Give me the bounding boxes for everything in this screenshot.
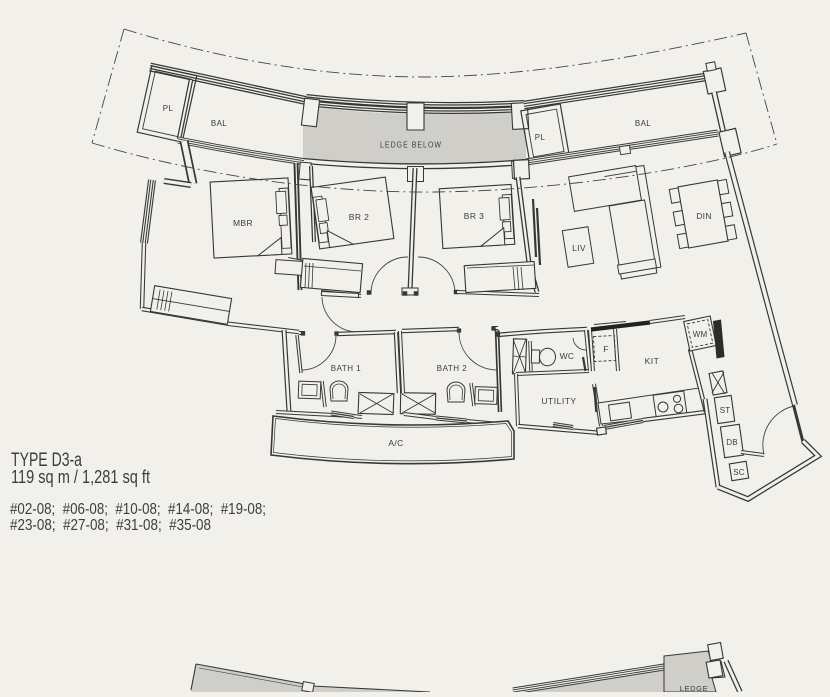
svg-text:BR 3: BR 3 (464, 211, 485, 221)
svg-text:A/C: A/C (388, 438, 403, 448)
svg-text:LEDGE BELOW: LEDGE BELOW (380, 141, 442, 150)
svg-text:119 sq m / 1,281 sq ft: 119 sq m / 1,281 sq ft (11, 467, 150, 487)
svg-text:DIN: DIN (696, 211, 712, 221)
svg-text:#23-08; #27-08; #31-08; #35: #23-08; #27-08; #31-08; #35-08 (10, 517, 211, 534)
svg-text:KIT: KIT (645, 356, 660, 366)
svg-text:SC: SC (733, 468, 745, 477)
svg-text:WC: WC (560, 351, 575, 361)
svg-text:WM: WM (693, 330, 708, 339)
svg-text:MBR: MBR (233, 218, 253, 228)
svg-text:PL: PL (535, 133, 546, 142)
svg-text:BAL: BAL (635, 119, 651, 128)
svg-text:BATH 1: BATH 1 (331, 364, 361, 373)
svg-text:UTILITY: UTILITY (541, 396, 576, 406)
svg-text:LEDGE: LEDGE (680, 684, 708, 692)
svg-text:#02-08; #06-08; #10-08; #14: #02-08; #06-08; #10-08; #14-08; #19-08; (10, 501, 266, 518)
svg-text:BR 2: BR 2 (349, 212, 370, 222)
svg-text:LIV: LIV (572, 243, 586, 253)
svg-text:BATH 2: BATH 2 (437, 364, 467, 373)
svg-text:DB: DB (726, 438, 738, 447)
svg-text:ST: ST (720, 406, 731, 415)
svg-text:PL: PL (163, 104, 174, 113)
svg-text:BAL: BAL (211, 119, 227, 128)
svg-text:F: F (603, 344, 609, 354)
